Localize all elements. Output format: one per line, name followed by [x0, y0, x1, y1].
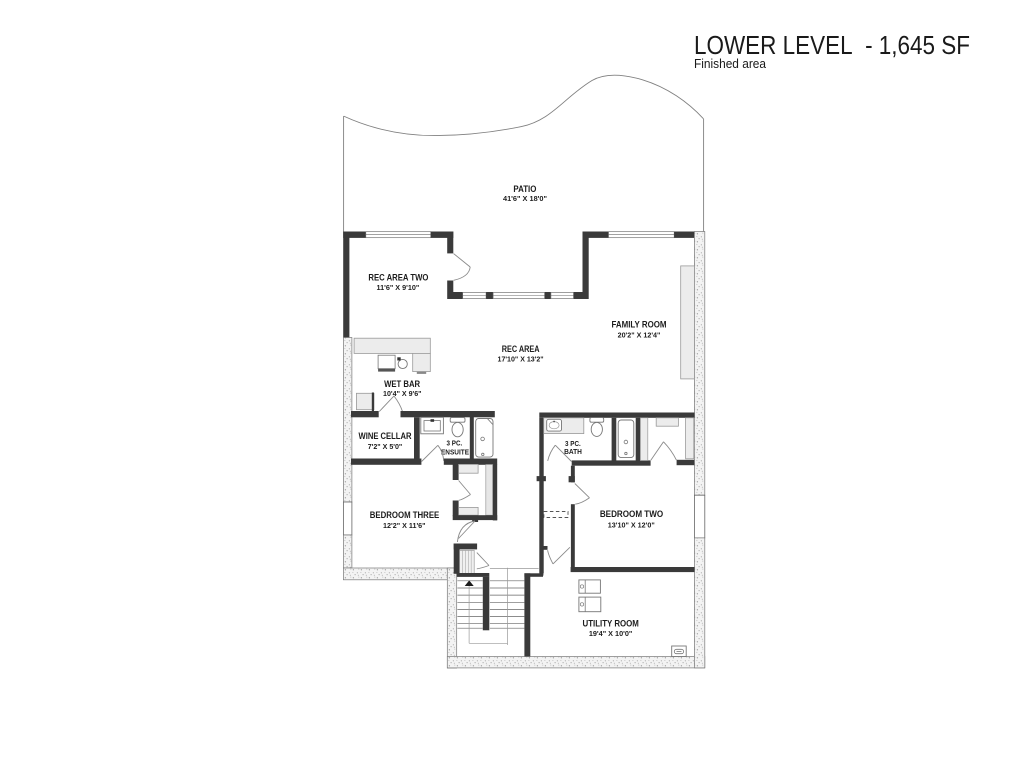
svg-text:ENSUITE: ENSUITE — [441, 447, 469, 456]
svg-text:BEDROOM TWO: BEDROOM TWO — [600, 508, 663, 519]
svg-text:FAMILY ROOM: FAMILY ROOM — [612, 319, 667, 330]
svg-text:REC AREA TWO: REC AREA TWO — [368, 272, 428, 283]
svg-text:11'6" X 9'10": 11'6" X 9'10" — [377, 283, 420, 292]
svg-text:PATIO: PATIO — [513, 183, 536, 194]
svg-text:LOWER LEVEL - 1,645 SF: LOWER LEVEL - 1,645 SF — [694, 32, 970, 60]
svg-text:WET BAR: WET BAR — [384, 378, 420, 389]
svg-text:UTILITY ROOM: UTILITY ROOM — [583, 618, 639, 629]
svg-text:Finished area: Finished area — [694, 57, 766, 71]
svg-text:BEDROOM THREE: BEDROOM THREE — [370, 509, 440, 520]
svg-text:13'10" X 12'0": 13'10" X 12'0" — [608, 521, 655, 530]
svg-text:10'4" X 9'6": 10'4" X 9'6" — [383, 389, 422, 398]
svg-text:19'4" X 10'0": 19'4" X 10'0" — [589, 629, 633, 638]
svg-text:7'2" X 5'0": 7'2" X 5'0" — [368, 442, 403, 451]
svg-text:20'2" X 12'4": 20'2" X 12'4" — [618, 331, 661, 340]
svg-text:17'10" X 13'2": 17'10" X 13'2" — [498, 355, 545, 364]
svg-text:41'6" X 18'0": 41'6" X 18'0" — [503, 194, 547, 203]
svg-text:WINE CELLAR: WINE CELLAR — [359, 430, 412, 441]
svg-text:REC AREA: REC AREA — [502, 343, 540, 354]
svg-text:3 PC.: 3 PC. — [447, 438, 463, 447]
svg-text:12'2" X 11'6": 12'2" X 11'6" — [383, 521, 426, 530]
svg-text:BATH: BATH — [564, 447, 582, 456]
